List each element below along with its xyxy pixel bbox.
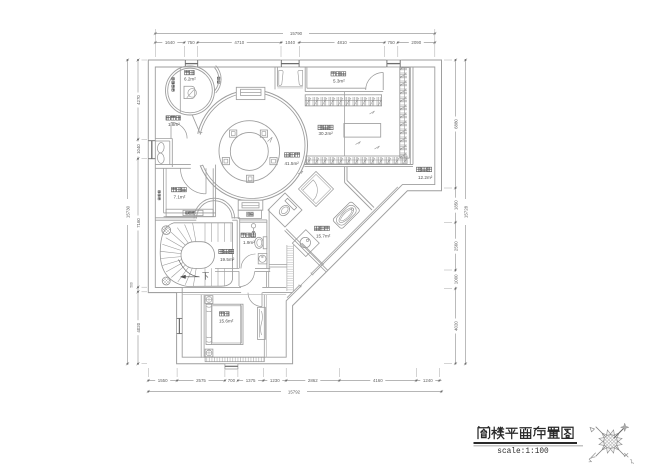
svg-text:1550: 1550	[158, 378, 168, 383]
svg-text:2575: 2575	[196, 378, 206, 383]
svg-text:500: 500	[130, 282, 134, 288]
svg-text:4710: 4710	[234, 40, 244, 45]
svg-text:15730: 15730	[125, 205, 130, 218]
svg-text:41.5m²: 41.5m²	[285, 161, 300, 166]
svg-text:7.1m²: 7.1m²	[174, 194, 186, 199]
svg-text:1040: 1040	[136, 144, 141, 154]
svg-text:1040: 1040	[285, 40, 295, 45]
svg-text:1850: 1850	[453, 200, 458, 210]
svg-text:15.7m²: 15.7m²	[316, 234, 331, 239]
svg-text:1640: 1640	[165, 40, 175, 45]
svg-text:1240: 1240	[423, 378, 433, 383]
svg-text:15728: 15728	[463, 205, 468, 218]
svg-text:750: 750	[388, 40, 396, 45]
svg-text:4020: 4020	[453, 321, 458, 331]
svg-text:15792: 15792	[288, 390, 301, 395]
svg-text:750: 750	[187, 40, 195, 45]
svg-text:700: 700	[228, 378, 236, 383]
svg-text:1000: 1000	[453, 274, 458, 284]
svg-text:scale:1:100: scale:1:100	[497, 448, 549, 456]
svg-text:2090: 2090	[411, 40, 421, 45]
svg-text:1375: 1375	[246, 378, 256, 383]
svg-text:1.9m²: 1.9m²	[243, 240, 255, 245]
svg-text:2560: 2560	[453, 241, 458, 251]
svg-text:15.6m²: 15.6m²	[219, 319, 234, 324]
svg-text:4270: 4270	[136, 95, 141, 105]
svg-text:12.2m²: 12.2m²	[418, 175, 433, 180]
svg-text:1.8m²: 1.8m²	[168, 122, 180, 127]
svg-text:1230: 1230	[270, 378, 280, 383]
svg-text:4160: 4160	[373, 378, 383, 383]
svg-text:6.2m²: 6.2m²	[184, 77, 196, 82]
svg-text:15790: 15790	[290, 31, 303, 36]
svg-text:19.5m²: 19.5m²	[220, 257, 235, 262]
svg-text:7160: 7160	[136, 218, 141, 228]
svg-text:4810: 4810	[337, 40, 347, 45]
svg-text:4020: 4020	[136, 322, 141, 332]
svg-text:6880: 6880	[453, 119, 458, 129]
svg-text:2862: 2862	[308, 378, 318, 383]
svg-text:30.2m²: 30.2m²	[319, 131, 334, 136]
svg-text:5.3m²: 5.3m²	[333, 79, 345, 84]
